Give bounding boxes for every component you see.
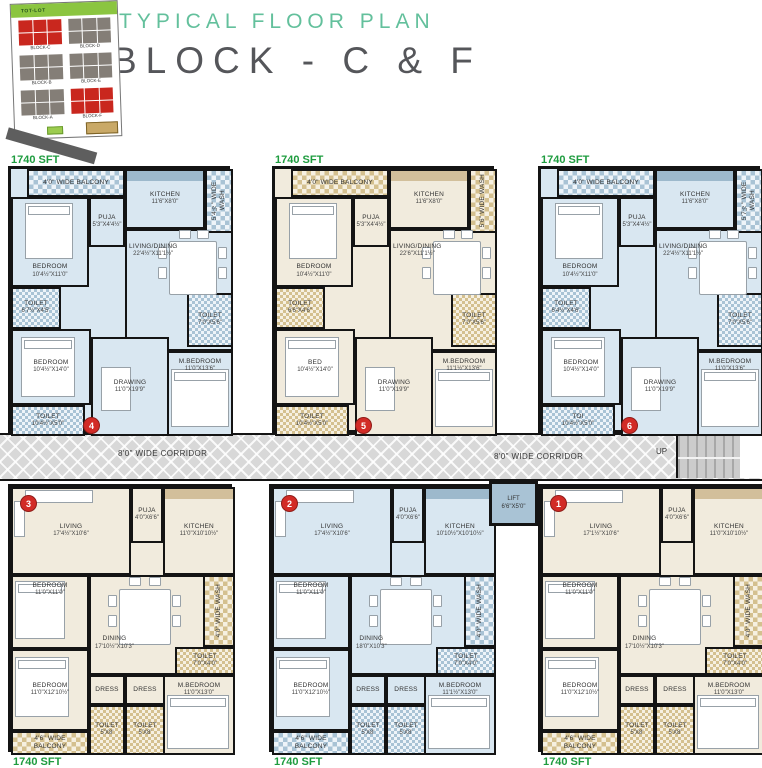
chair-icon [218, 247, 227, 259]
room-name: TOILET [454, 653, 478, 661]
chair-icon [659, 577, 671, 586]
key-plan-block-f: BLOCK-F [70, 87, 114, 120]
room-dims: 11'0"X10'10½" [180, 531, 218, 539]
bed-icon [428, 695, 490, 749]
unit-4-puja: PUJA5'3"X4'4½" [89, 197, 125, 247]
room-name: BEDROOM [33, 582, 68, 590]
counter-accent [391, 171, 467, 181]
block-c-cells [18, 19, 61, 45]
room-dims: 11'0"X19'9" [115, 387, 145, 395]
room-name: LIVING/DINING [393, 243, 441, 251]
unit-2-puja: PUJA4'0"X6'6" [392, 487, 424, 543]
unit-6-bedroom1-label: BEDROOM10'4½"X11'0" [562, 263, 597, 279]
room-name: TOILET [728, 312, 752, 320]
unit-6-puja: PUJA5'3"X4'4½" [619, 197, 655, 247]
room-dims: 11'0"X19'9" [645, 387, 675, 395]
unit-2-living-label: LIVING17'4½"X10'6" [314, 523, 350, 539]
bed-icon [167, 695, 229, 749]
unit-3-toilet1-label: TOILET7'0"X4'0" [193, 653, 217, 669]
unit-3-dining-label: DINING17'10½"X10'3" [95, 635, 134, 651]
unit-5-area-label: 1740 SFT [275, 154, 323, 166]
unit-6-toilet1-label: TOILET6'4½"X4'6" [552, 300, 581, 316]
room-dims: 11'6"X8'0" [152, 199, 179, 207]
chair-icon [638, 595, 647, 607]
unit-5-toilet2-label: TOILET7'0"X5'6" [462, 312, 486, 328]
unit-6-plan: BEDROOM10'4½"X11'0"PUJA5'3"X4'4½"KITCHEN… [538, 166, 760, 433]
room-name: 4'6" WIDE BALCONY [17, 735, 82, 751]
room-name: TOILET [300, 413, 324, 421]
chair-icon [149, 577, 161, 586]
unit-1-toilet2-label: TOILET5'X8' [625, 722, 649, 738]
unit-1-toilet3: TOILET5'X8' [655, 705, 695, 755]
unit-6-area-label: 1740 SFT [541, 154, 589, 166]
unit-1-number-badge: 1 [550, 495, 567, 512]
unit-3-dress2: DRESS [125, 675, 165, 705]
room-dims: 5'X8' [400, 730, 413, 738]
unit-2-toilet1-label: TOILET7'0"X4'0" [454, 653, 478, 669]
room-dims: 10'4½"X11'0" [562, 272, 597, 280]
room-name: 5'7½" WIDE WASH [741, 173, 757, 228]
key-plan-block-b: BLOCK-B [19, 54, 63, 87]
room-name: TOILET [356, 722, 380, 730]
room-name: TOILET [95, 722, 119, 730]
room-dims: 11'0"X11'0" [35, 590, 65, 598]
unit-number: 6 [627, 421, 632, 431]
room-dims: 17'1½"X10'6" [583, 531, 619, 539]
chair-icon [638, 615, 647, 627]
bed-icon [555, 203, 603, 259]
chair-icon [158, 267, 167, 279]
unit-1-kitchen: KITCHEN11'0"X10'10½" [693, 487, 762, 575]
unit-3-area-label: 1740 SFT [13, 756, 61, 768]
chair-icon [172, 615, 181, 627]
unit-4-number-badge: 4 [83, 417, 100, 434]
unit-2-dress1-label: DRESS [356, 686, 379, 694]
room-dims: 6'4½"X4'6" [552, 308, 581, 316]
room-dims: 10'4½"X11'0" [32, 272, 67, 280]
unit-5-toilet3: TOILET10'4½"X5'0" [275, 405, 349, 436]
corridor-label-right: 8'0" WIDE CORRIDOR [494, 452, 583, 461]
room-name: 4'0" WIDE BALCONY [43, 179, 109, 187]
chair-icon [727, 230, 739, 239]
unit-2-toilet3-label: TOILET5'X8' [394, 722, 418, 738]
corridor: 8'0" WIDE CORRIDOR 8'0" WIDE CORRIDOR UP [0, 433, 762, 481]
unit-4-balcony: 4'0" WIDE BALCONY [27, 169, 125, 197]
room-name: PUJA [399, 507, 416, 515]
unit-6-bedroom2-label: BEDROOM10'4½"X14'0" [563, 359, 599, 375]
room-dims: 17'4½"X10'6" [314, 531, 350, 539]
room-name: DRESS [356, 686, 379, 694]
room-name: 4'0" WIDE WASH [745, 584, 753, 637]
key-plan-block-a: BLOCK-A [21, 89, 65, 122]
room-dims: 11'0"X12'10½" [31, 690, 69, 698]
unit-4-balcony-label: 4'0" WIDE BALCONY [43, 179, 109, 187]
room-dims: 11'0"X13'6" [715, 366, 745, 374]
unit-6-toilet3: TOI10'4½"X5'0" [541, 405, 615, 436]
lawn-patch [47, 126, 63, 135]
unit-1-bedroom2-label: BEDROOM11'0"X12'10½" [561, 682, 599, 698]
room-dims: 11'1½"X13'0" [442, 690, 477, 698]
room-name: M.BEDROOM [179, 358, 222, 366]
unit-6-drawing-label: DRAWING11'0"X19'9" [644, 379, 677, 395]
room-dims: 11'0"X12'10½" [292, 690, 330, 698]
key-plan: TOT-LOT BLOCK-C BLOCK-D BLOCK-B BLOCK-E … [10, 0, 123, 140]
block-a-cells [21, 89, 64, 115]
dining-table-icon [380, 589, 432, 645]
unit-number: 4 [89, 421, 94, 431]
unit-2-area-label: 1740 SFT [274, 756, 322, 768]
unit-1-dress2: DRESS [655, 675, 695, 705]
room-name: TOILET [133, 722, 157, 730]
room-dims: 7'0"X5'6" [462, 320, 486, 328]
unit-4-wash-label: 5'4½" WIDE WASH [211, 173, 227, 228]
chair-icon [108, 615, 117, 627]
unit-6-living-label: LIVING/DINING22'4½"X11'1½" [659, 243, 707, 259]
unit-1-kitchen-label: KITCHEN11'0"X10'10½" [710, 523, 748, 539]
room-name: DRESS [95, 686, 118, 694]
room-name: DINING [359, 635, 383, 643]
room-dims: 10'4½"X14'0" [563, 367, 599, 375]
room-name: TOILET [288, 300, 312, 308]
room-name: M.BEDROOM [178, 682, 221, 690]
block-f-label: BLOCK-F [71, 112, 114, 120]
key-plan-block-e: BLOCK-E [69, 52, 113, 85]
unit-5-puja-label: PUJA5'3"X4'4½" [357, 214, 385, 230]
unit-6-puja-label: PUJA5'3"X4'4½" [623, 214, 651, 230]
unit-1-area-label: 1740 SFT [543, 756, 591, 768]
room-name: 4'6" WIDE BALCONY [547, 735, 612, 751]
unit-5-living-label: LIVING/DINING22'6"X11'1½" [393, 243, 441, 259]
chair-icon [179, 230, 191, 239]
room-name: BEDROOM [296, 263, 331, 271]
unit-3-toilet2: TOILET5'X8' [89, 705, 125, 755]
counter-accent [426, 489, 494, 499]
unit-1-dress1: DRESS [619, 675, 655, 705]
unit-6-wash-label: 5'7½" WIDE WASH [741, 173, 757, 228]
room-name: LIVING/DINING [659, 243, 707, 251]
room-dims: 11'0"X11'0" [565, 590, 595, 598]
key-plan-block-c: BLOCK-C [18, 19, 62, 52]
lift-dims: 6'6"X5'0" [502, 504, 526, 512]
room-name: DRESS [663, 686, 686, 694]
room-dims: 11'0"X19'9" [379, 387, 409, 395]
unit-4-plan: BEDROOM10'4½"X11'0"PUJA5'3"X4'4½"KITCHEN… [8, 166, 230, 433]
unit-3-mbedroom-label: M.BEDROOM11'0"X13'0" [178, 682, 221, 698]
unit-4-area-label: 1740 SFT [11, 154, 59, 166]
unit-3-dress2-label: DRESS [133, 686, 156, 694]
chair-icon [369, 595, 378, 607]
block-d-label: BLOCK-D [69, 42, 112, 50]
unit-5-toilet1-label: TOILET6'6"X4'6" [288, 300, 312, 316]
unit-number: 2 [287, 499, 292, 509]
unit-3-kitchen: KITCHEN11'0"X10'10½" [163, 487, 235, 575]
bed-icon [697, 695, 759, 749]
room-dims: 22'4½"X11'1½" [663, 251, 703, 259]
room-name: DINING [102, 635, 126, 643]
counter-accent [165, 489, 233, 499]
block-a-label: BLOCK-A [22, 114, 65, 122]
room-dims: 5'3"X4'4½" [357, 222, 386, 230]
unit-2-dress2: DRESS [386, 675, 426, 705]
unit-3-balcony-label: 4'6" WIDE BALCONY [17, 735, 82, 751]
unit-1-toilet1-label: TOILET7'0"X4'0" [723, 653, 747, 669]
room-dims: 5'X8' [669, 730, 682, 738]
unit-3-toilet2-label: TOILET5'X8' [95, 722, 119, 738]
room-name: TOILET [625, 722, 649, 730]
chair-icon [129, 577, 141, 586]
room-dims: 17'10½"X10'3" [625, 644, 664, 652]
unit-5-toilet1: TOILET6'6"X4'6" [275, 287, 325, 329]
unit-3-living-label: LIVING17'4½"X10'6" [53, 523, 89, 539]
unit-1-balcony: 4'6" WIDE BALCONY [541, 731, 619, 755]
room-dims: 4'0"X6'6" [665, 515, 689, 523]
chair-icon [172, 595, 181, 607]
chair-icon [482, 247, 491, 259]
unit-1-dress1-label: DRESS [625, 686, 648, 694]
room-name: KITCHEN [414, 191, 444, 199]
room-dims: 5'3"X4'4½" [623, 222, 652, 230]
unit-2-bedroom1-label: BEDROOM11'0"X11'0" [294, 582, 329, 598]
unit-2-kitchen: KITCHEN10'10½"X10'10½" [424, 487, 496, 575]
room-dims: 11'0"X13'6" [185, 366, 215, 374]
room-dims: 22'4½"X11'1½" [133, 251, 173, 259]
unit-1-puja: PUJA4'0"X6'6" [661, 487, 693, 543]
unit-1-wash: 4'0" WIDE WASH [733, 575, 762, 647]
room-name: DINING [632, 635, 656, 643]
room-name: TOILET [663, 722, 687, 730]
counter-accent [657, 171, 733, 181]
room-name: TOILET [36, 413, 60, 421]
unit-5-wash: 5'6" WIDE WASH [469, 169, 497, 233]
block-d-cells [68, 17, 111, 43]
block-c-label: BLOCK-C [19, 44, 62, 52]
room-name: 4'0" WIDE BALCONY [573, 179, 639, 187]
unit-5-kitchen-label: KITCHEN11'6"X8'0" [414, 191, 444, 207]
unit-5-drawing-label: DRAWING11'0"X19'9" [378, 379, 411, 395]
chair-icon [218, 267, 227, 279]
room-dims: 11'1½"X13'6" [446, 366, 481, 374]
bed-icon [289, 203, 337, 259]
unit-3-kitchen-label: KITCHEN11'0"X10'10½" [180, 523, 218, 539]
room-name: BEDROOM [294, 582, 329, 590]
unit-2-balcony: 4'6" WIDE BALCONY [272, 731, 350, 755]
unit-3-puja: PUJA4'0"X6'6" [131, 487, 163, 543]
unit-5-number-badge: 5 [355, 417, 372, 434]
unit-4-drawing-label: DRAWING11'0"X19'9" [114, 379, 147, 395]
room-dims: 10'4½"X5'0" [32, 421, 64, 429]
room-name: 5'6" WIDE WASH [479, 174, 487, 227]
tot-lot-label: TOT-LOT [21, 7, 46, 14]
room-dims: 11'6"X8'0" [682, 199, 709, 207]
lift: LIFT 6'6"X5'0" [489, 481, 538, 526]
unit-1-wash-label: 4'0" WIDE WASH [745, 584, 753, 637]
unit-4-puja-label: PUJA5'3"X4'4½" [93, 214, 121, 230]
unit-1-mbedroom-label: M.BEDROOM11'0"X13'0" [708, 682, 751, 698]
unit-5-balcony-label: 4'0" WIDE BALCONY [307, 179, 373, 187]
room-dims: 10'4½"X5'0" [562, 421, 594, 429]
unit-6-kitchen-label: KITCHEN11'6"X8'0" [680, 191, 710, 207]
room-dims: 10'4½"X5'0" [296, 421, 328, 429]
unit-5-bedroom1-label: BEDROOM10'4½"X11'0" [296, 263, 331, 279]
unit-1-dining-label: DINING17'10½"X10'3" [625, 635, 664, 651]
clubhouse-patch [86, 121, 118, 134]
unit-4-toilet2: TOILET7'0"X5'6" [187, 293, 233, 347]
room-name: BEDROOM [32, 263, 67, 271]
counter-accent [695, 489, 762, 499]
chair-icon [422, 267, 431, 279]
unit-3-toilet3: TOILET5'X8' [125, 705, 165, 755]
room-name: TOILET [193, 653, 217, 661]
unit-1-living-label: LIVING17'1½"X10'6" [583, 523, 619, 539]
unit-5-mbedroom-label: M.BEDROOM11'1½"X13'6" [443, 358, 486, 374]
unit-6-wash: 5'7½" WIDE WASH [735, 169, 762, 233]
unit-3-bedroom2-label: BEDROOM11'0"X12'10½" [31, 682, 69, 698]
bed-icon [25, 203, 73, 259]
room-dims: 7'0"X4'0" [454, 661, 478, 669]
room-dims: 4'0"X6'6" [396, 515, 420, 523]
chair-icon [748, 267, 757, 279]
room-name: TOILET [198, 312, 222, 320]
room-name: M.BEDROOM [708, 682, 751, 690]
room-name: TOI [572, 413, 583, 421]
room-dims: 22'6"X11'1½" [400, 251, 435, 259]
chair-icon [679, 577, 691, 586]
room-dims: 7'0"X4'0" [193, 661, 217, 669]
staircase-landing [740, 436, 762, 478]
room-name: 4'0" WIDE WASH [476, 584, 484, 637]
unit-2-toilet3: TOILET5'X8' [386, 705, 426, 755]
unit-5-puja: PUJA5'3"X4'4½" [353, 197, 389, 247]
corridor-label-left: 8'0" WIDE CORRIDOR [118, 449, 207, 458]
room-name: DRAWING [644, 379, 677, 387]
room-name: KITCHEN [150, 191, 180, 199]
unit-number: 5 [361, 421, 366, 431]
unit-1-balcony-label: 4'6" WIDE BALCONY [547, 735, 612, 751]
room-name: DRAWING [114, 379, 147, 387]
room-dims: 18'0"X10'3" [356, 644, 387, 652]
room-name: TOILET [462, 312, 486, 320]
unit-4-living-label: LIVING/DINING22'4½"X11'1½" [129, 243, 177, 259]
staircase [676, 436, 742, 478]
chair-icon [688, 267, 697, 279]
room-dims: 11'6"X8'0" [416, 199, 443, 207]
chair-icon [709, 230, 721, 239]
unit-3-toilet1: TOILET7'0"X4'0" [175, 647, 235, 675]
unit-6-balcony-label: 4'0" WIDE BALCONY [573, 179, 639, 187]
chair-icon [433, 595, 442, 607]
unit-2-kitchen-label: KITCHEN10'10½"X10'10½" [436, 523, 483, 539]
room-dims: 7'0"X5'6" [198, 320, 222, 328]
room-name: LIVING/DINING [129, 243, 177, 251]
unit-1-toilet1: TOILET7'0"X4'0" [705, 647, 762, 675]
unit-1-dress2-label: DRESS [663, 686, 686, 694]
plan-subtitle: TYPICAL FLOOR PLAN [119, 10, 435, 34]
bed-icon [171, 369, 229, 427]
unit-4-kitchen-label: KITCHEN11'6"X8'0" [150, 191, 180, 207]
room-name: DRESS [625, 686, 648, 694]
room-dims: 5'X8' [101, 730, 114, 738]
unit-4-wash: 5'4½" WIDE WASH [205, 169, 233, 233]
key-plan-block-d: BLOCK-D [68, 17, 112, 50]
unit-2-wash: 4'0" WIDE WASH [464, 575, 496, 647]
unit-2-plan: LIVING17'4½"X10'6"PUJA4'0"X6'6"KITCHEN10… [269, 484, 494, 752]
unit-3-balcony: 4'6" WIDE BALCONY [11, 731, 89, 755]
room-name: PUJA [138, 507, 155, 515]
unit-1-toilet3-label: TOILET5'X8' [663, 722, 687, 738]
unit-2-toilet2: TOILET5'X8' [350, 705, 386, 755]
room-dims: 11'0"X13'0" [184, 690, 214, 698]
unit-6-toilet1: TOILET6'4½"X4'6" [541, 287, 591, 329]
unit-2-mbedroom-label: M.BEDROOM11'1½"X13'0" [439, 682, 482, 698]
block-e-label: BLOCK-E [70, 77, 113, 85]
unit-3-wash: 4'0" WIDE WASH [203, 575, 235, 647]
stair-up-label: UP [656, 447, 667, 456]
room-name: 4'0" WIDE WASH [215, 584, 223, 637]
unit-3-bedroom1-label: BEDROOM11'0"X11'0" [33, 582, 68, 598]
unit-1-puja-label: PUJA4'0"X6'6" [665, 507, 689, 523]
unit-3-dress1: DRESS [89, 675, 125, 705]
floor-plan-canvas: TYPICAL FLOOR PLAN BLOCK - C & F TOT-LOT… [0, 0, 762, 768]
unit-number: 1 [556, 499, 561, 509]
room-name: DRESS [394, 686, 417, 694]
block-b-label: BLOCK-B [20, 79, 63, 87]
block-f-cells [70, 87, 113, 113]
room-name: M.BEDROOM [709, 358, 752, 366]
room-name: TOILET [394, 722, 418, 730]
unit-4-toilet1-label: TOILET6'7½"X4'5" [22, 300, 51, 316]
chair-icon [482, 267, 491, 279]
unit-2-dining-label: DINING18'0"X10'3" [356, 635, 387, 651]
room-dims: 17'4½"X10'6" [53, 531, 89, 539]
unit-4-toilet3-label: TOILET10'4½"X5'0" [32, 413, 64, 429]
room-dims: 10'4½"X14'0" [33, 367, 69, 375]
unit-3-toilet3-label: TOILET5'X8' [133, 722, 157, 738]
room-name: BEDROOM [563, 582, 598, 590]
room-dims: 11'0"X11'0" [296, 590, 326, 598]
unit-2-wash-label: 4'0" WIDE WASH [476, 584, 484, 637]
unit-2-number-badge: 2 [281, 495, 298, 512]
room-name: BEDROOM [562, 263, 597, 271]
unit-6-number-badge: 6 [621, 417, 638, 434]
unit-1-toilet2: TOILET5'X8' [619, 705, 655, 755]
room-name: M.BEDROOM [443, 358, 486, 366]
unit-4-toilet1: TOILET6'7½"X4'5" [11, 287, 61, 329]
room-name: 4'6" WIDE BALCONY [278, 735, 343, 751]
chair-icon [748, 247, 757, 259]
unit-2-toilet1: TOILET7'0"X4'0" [436, 647, 496, 675]
chair-icon [390, 577, 402, 586]
chair-icon [369, 615, 378, 627]
unit-3-dress1-label: DRESS [95, 686, 118, 694]
chair-icon [702, 595, 711, 607]
unit-3-puja-label: PUJA4'0"X6'6" [135, 507, 159, 523]
chair-icon [433, 615, 442, 627]
unit-number: 3 [26, 499, 31, 509]
unit-1-bedroom1-label: BEDROOM11'0"X11'0" [563, 582, 598, 598]
unit-6-balcony: 4'0" WIDE BALCONY [557, 169, 655, 197]
room-dims: 10'10½"X10'10½" [436, 531, 483, 539]
chair-icon [108, 595, 117, 607]
room-dims: 5'X8' [631, 730, 644, 738]
room-name: PUJA [668, 507, 685, 515]
unit-6-toilet2: TOILET7'0"X5'6" [717, 293, 762, 347]
chair-icon [443, 230, 455, 239]
chair-icon [461, 230, 473, 239]
unit-4-toilet3: TOILET10'4½"X5'0" [11, 405, 85, 436]
room-dims: 5'X8' [362, 730, 375, 738]
unit-5-bedroom2-label: BED10'4½"X14'0" [297, 359, 333, 375]
room-name: TOILET [723, 653, 747, 661]
